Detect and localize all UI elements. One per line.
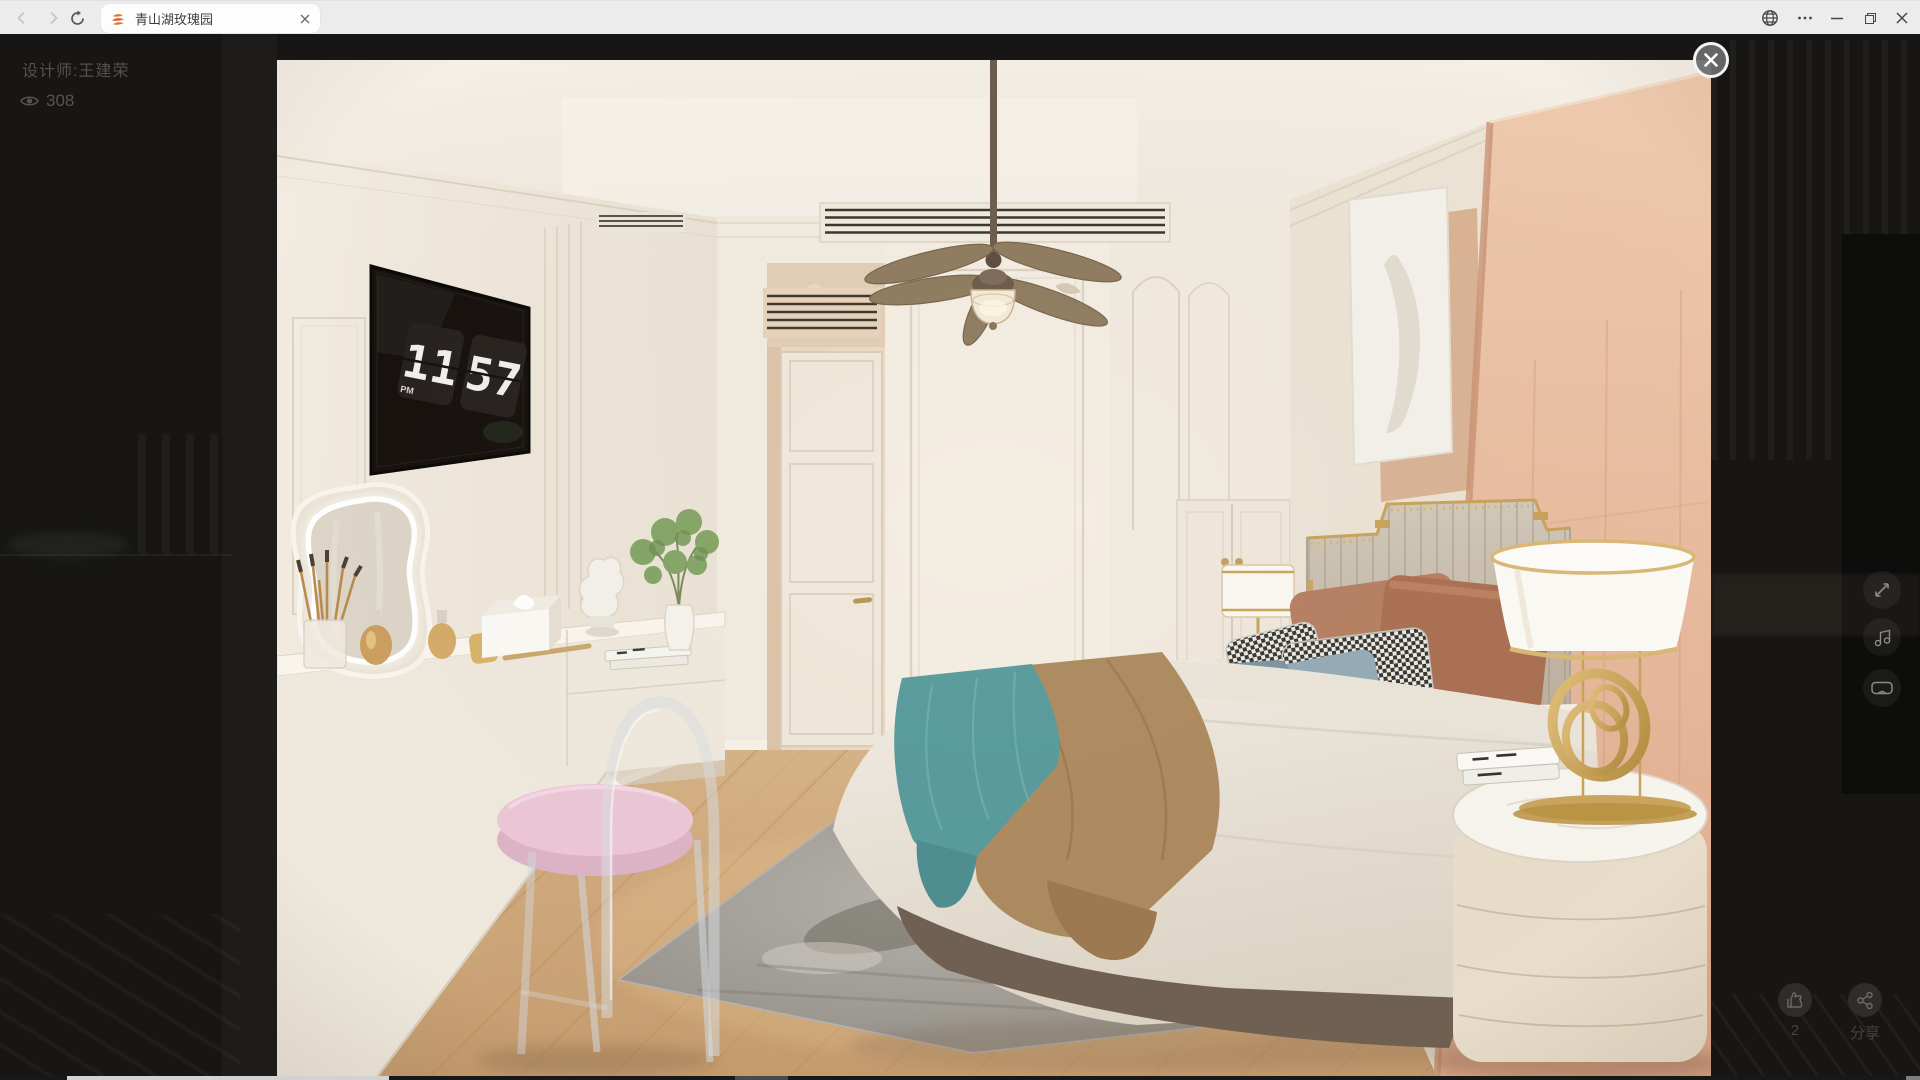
share-button[interactable] [1848,983,1882,1017]
share-label: 分享 [1835,1022,1895,1043]
lightbox-close-button[interactable] [1693,42,1729,78]
music-button[interactable] [1863,618,1901,656]
view-count-row: 308 [20,91,74,111]
browser-window: 青山湖玫瑰园 [0,0,1920,1080]
tab-close-icon[interactable] [299,13,311,25]
like-count: 2 [1765,1022,1825,1039]
vr-goggles-icon [1870,678,1894,698]
globe-button[interactable] [1756,5,1784,31]
close-icon [1703,52,1719,68]
tab-title: 青山湖玫瑰园 [135,9,299,28]
minimize-icon [1828,9,1846,27]
chevron-left-icon [14,10,30,26]
globe-icon [1761,9,1779,27]
back-button[interactable] [10,6,34,30]
dim-kitchen-shelf [138,434,230,554]
like-button[interactable] [1778,983,1812,1017]
restore-icon [1865,13,1876,24]
chevron-right-icon [45,10,61,26]
thumbs-up-icon [1786,991,1804,1009]
bedroom-render: 11 57 PM [277,60,1711,1077]
lightbox-photo: 11 57 PM [277,60,1711,1077]
vr-button[interactable] [1863,669,1901,707]
more-options-button[interactable] [1791,5,1819,31]
browser-toolbar: 青山湖玫瑰园 [0,0,1920,34]
designer-label: 设计师:王建荣 [22,57,129,81]
refresh-button[interactable] [65,6,89,30]
window-close-icon [1893,9,1911,27]
dim-plant-blob [8,532,128,558]
expand-arrows-icon [1872,580,1892,600]
dim-stairs [0,914,240,1080]
scrollbar-corner [1906,1076,1920,1080]
scrollbar-thumb[interactable] [67,1076,389,1080]
browser-tab[interactable]: 青山湖玫瑰园 [101,4,320,33]
ellipsis-icon [1796,9,1814,27]
restore-button[interactable] [1856,5,1884,31]
minimize-button[interactable] [1823,5,1851,31]
view-count: 308 [46,91,74,111]
forward-button[interactable] [41,6,65,30]
vignette [277,60,1711,1077]
horizontal-scrollbar[interactable] [0,1076,1920,1080]
music-note-icon [1872,627,1892,647]
window-close-button[interactable] [1888,5,1916,31]
dim-dark-cabinet [1842,234,1920,794]
fullscreen-button[interactable] [1863,571,1901,609]
scrollbar-segment [735,1076,788,1080]
site-favicon-icon [110,11,126,27]
share-icon [1856,991,1874,1009]
eye-icon [20,94,39,108]
refresh-icon [69,10,86,27]
